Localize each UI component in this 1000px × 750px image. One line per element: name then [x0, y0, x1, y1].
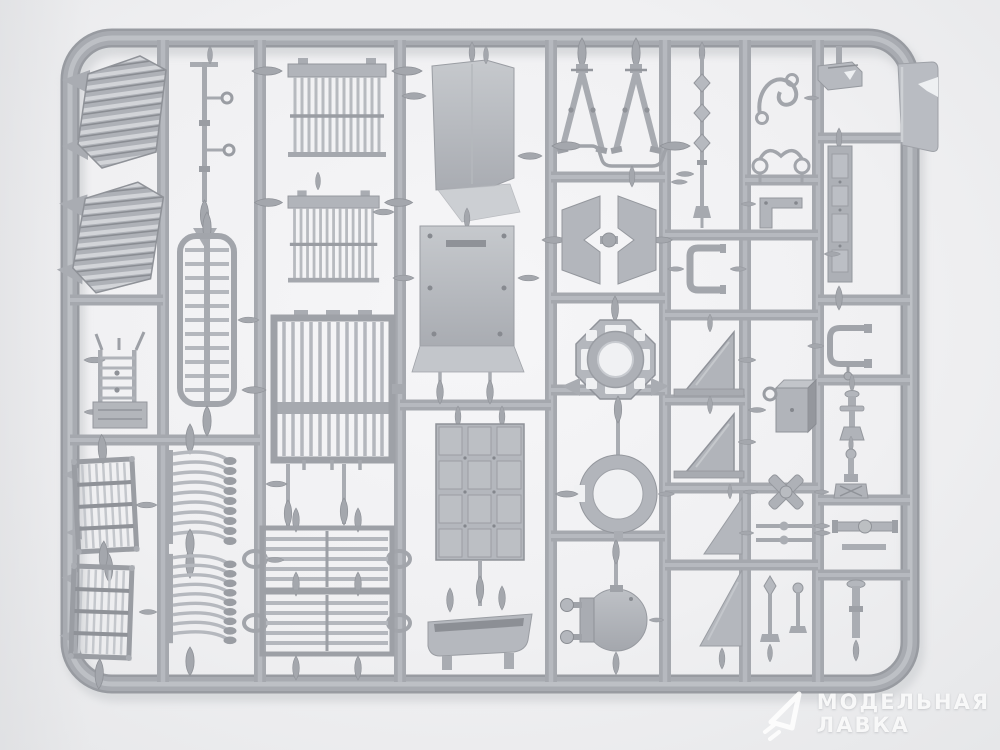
sprue-photo-canvas: [0, 0, 1000, 750]
sprue-corner-tab: [898, 62, 938, 151]
sprue-photo: МОДЕЛЬНАЯ ЛАВКА: [0, 0, 1000, 750]
